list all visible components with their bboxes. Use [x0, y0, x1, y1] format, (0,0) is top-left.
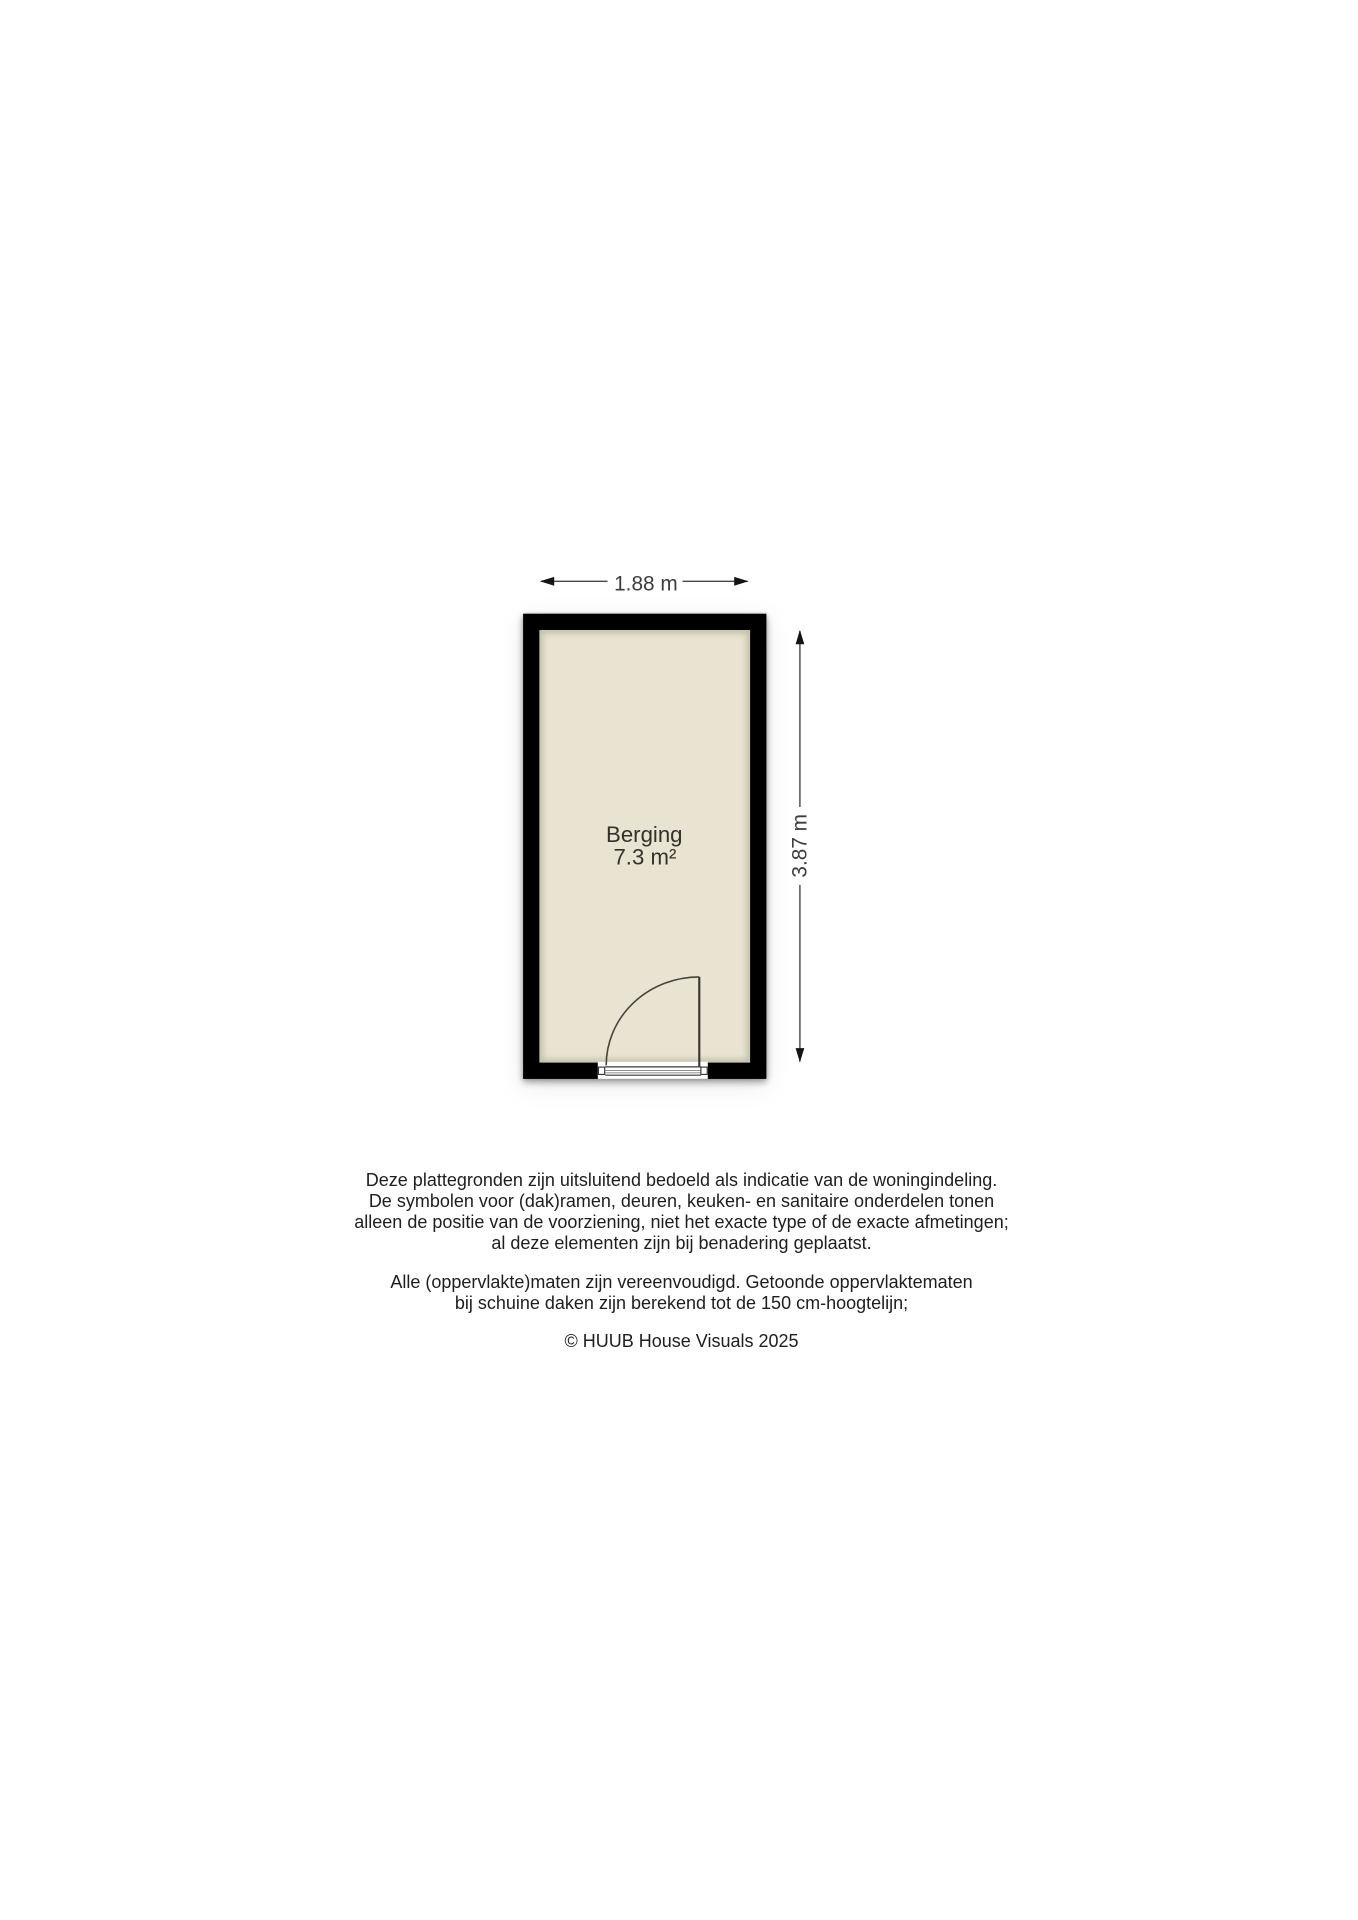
svg-text:1.88 m: 1.88 m	[614, 572, 678, 595]
svg-text:7.3 m²: 7.3 m²	[613, 845, 676, 870]
svg-text:3.87 m: 3.87 m	[789, 814, 812, 878]
svg-text:Berging: Berging	[606, 822, 682, 847]
